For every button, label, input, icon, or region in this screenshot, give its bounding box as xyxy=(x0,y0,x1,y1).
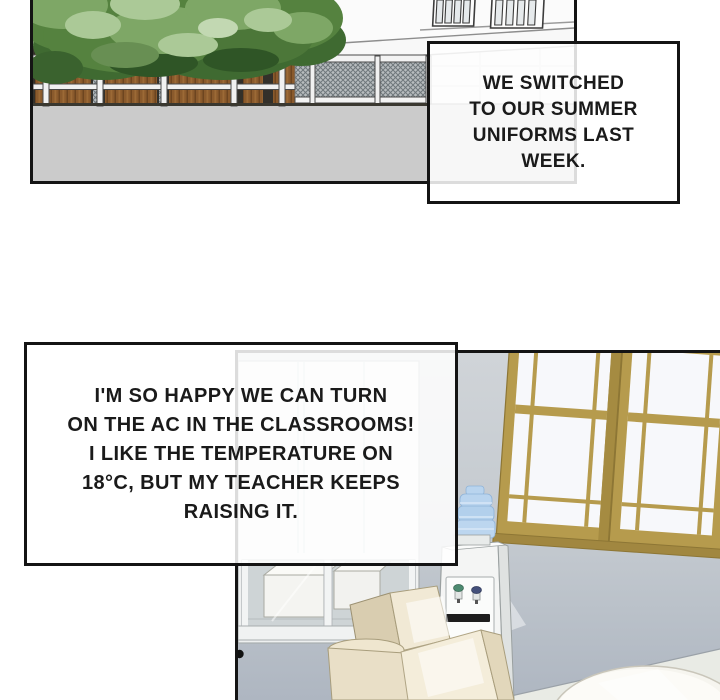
speech-line: RAISING IT. xyxy=(184,498,298,527)
speech-line: WE SWITCHED xyxy=(483,71,625,97)
speech-line: UNIFORMS LAST xyxy=(473,123,634,149)
speech-line: ON THE AC IN THE CLASSROOMS! xyxy=(67,411,414,440)
louver-window xyxy=(433,0,476,26)
speech-line: I'M SO HAPPY WE CAN TURN xyxy=(95,382,388,411)
drip-tray-slot xyxy=(446,614,490,622)
speech-line: WEEK. xyxy=(521,149,585,175)
speech-line: I LIKE THE TEMPERATURE ON xyxy=(89,440,393,469)
comic-page: WE SWITCHED TO OUR SUMMER UNIFORMS LAST … xyxy=(0,0,720,700)
louver-window xyxy=(491,0,545,28)
speech-line: TO OUR SUMMER xyxy=(469,97,637,123)
speech-box-ac: I'M SO HAPPY WE CAN TURN ON THE AC IN TH… xyxy=(24,342,458,566)
speech-box-uniforms: WE SWITCHED TO OUR SUMMER UNIFORMS LAST … xyxy=(427,41,680,204)
classroom-window xyxy=(493,353,720,558)
speech-line: 18°C, BUT MY TEACHER KEEPS xyxy=(82,469,400,498)
